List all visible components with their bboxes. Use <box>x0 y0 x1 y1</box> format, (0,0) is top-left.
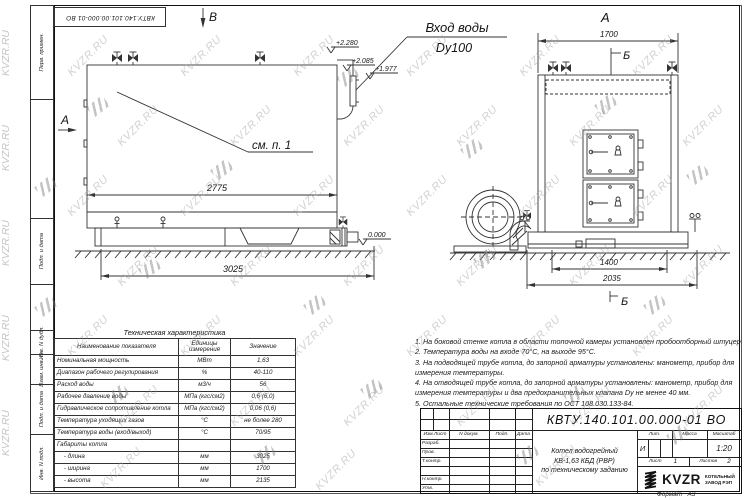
svg-text:0.000: 0.000 <box>368 232 386 239</box>
inlet-label: Вход воды Dy100 <box>356 20 507 90</box>
kvzr-watermark-vertical: KVZR.RU <box>0 125 12 171</box>
stamp-grid-line <box>421 430 741 431</box>
svg-text:+2.085: +2.085 <box>352 58 374 65</box>
kvzr-watermark-vertical: KVZR.RU <box>0 315 12 361</box>
svg-text:2035: 2035 <box>602 274 621 283</box>
svg-text:Dy100: Dy100 <box>436 41 472 55</box>
kvzr-logo-text: KVZR <box>662 472 701 487</box>
left-view-base-frame <box>95 217 347 246</box>
stamp-lit-label: Лит. <box>637 430 672 439</box>
stamp-col-data: Дата <box>515 430 532 439</box>
elevation-marks: +2.280 +2.085 +1.977 0.000 <box>327 40 398 245</box>
table-row: - ширинамм1700 <box>55 464 296 476</box>
kvzr-watermark-vertical: KVZR.RU <box>0 410 12 456</box>
stamp-grid-line <box>489 409 490 493</box>
section-marker-b-bottom: Б <box>621 296 628 308</box>
note-line: 1. На боковой стенке котла в области топ… <box>415 337 742 347</box>
margin-cell-empty-1 <box>30 99 54 219</box>
section-marker-v: В <box>209 10 217 24</box>
margin-cell-empty-2 <box>30 284 54 331</box>
table-row: Габариты котла <box>55 440 296 452</box>
svg-text:Вход воды: Вход воды <box>425 20 489 35</box>
stamp-col-podp: Подп. <box>489 430 515 439</box>
view-marker-a: А <box>60 113 69 127</box>
callout-see-p1: см. п. 1 <box>252 140 291 152</box>
col-header-units: Единицы измерения <box>179 339 231 356</box>
kvzr-watermark-vertical: KVZR.RU <box>0 220 12 266</box>
margin-cell-podp-data-2: Подп. и дата <box>30 384 54 435</box>
stamp-row-utv: Утв. <box>421 484 449 493</box>
left-view-boiler-front: см. п. 1 2775 3025 В А <box>58 8 507 280</box>
stamp-grid-line <box>449 409 450 493</box>
stamp-grid-line <box>637 430 638 493</box>
technical-notes: 1. На боковой стенке котла в области топ… <box>415 337 742 409</box>
stamp-grid-line <box>672 430 673 457</box>
stamp-row-blank <box>421 466 449 475</box>
dim-1700: 1700 <box>538 30 678 73</box>
margin-cell-inv-podl: Инв. N подл. <box>30 434 54 492</box>
col-header-value: Значение <box>231 339 296 356</box>
table-row: Расход водым3/ч56 <box>55 380 296 392</box>
note-line: 4. На отводящей трубе котла, до запорной… <box>415 378 742 399</box>
table-row: Температура уходящих газов°Сне более 280 <box>55 416 296 428</box>
stamp-grid-line <box>515 409 516 493</box>
svg-text:3025: 3025 <box>223 264 244 274</box>
stamp-grid-line <box>532 409 533 493</box>
format-label: Формат А3 <box>612 491 740 498</box>
drawing-sheet: Перв. примен. Подп. и дата Инв. N дубл. … <box>0 0 750 500</box>
tech-table: Наименование показателя Единицы измерени… <box>54 338 296 488</box>
table-row: Гидравлическое сопротивление котлаМПа (к… <box>55 404 296 416</box>
title-block: КВТУ.140.101.00.000-01 ВО Изм.Лист N док… <box>420 408 742 494</box>
stamp-mass-label: Масса <box>672 430 707 439</box>
note-line: 3. На подводящей трубе котла, до запорно… <box>415 358 742 379</box>
lower-access-door <box>583 180 643 227</box>
stamp-grid-line <box>689 457 690 466</box>
note-line: 2. Температура воды на входе 70°С, на вы… <box>415 347 742 357</box>
stamp-doc-number: КВТУ.140.101.00.000-01 ВО <box>532 409 741 430</box>
stamp-scale-value: 1:20 <box>707 439 741 457</box>
dim-2035: 2035 <box>527 250 697 289</box>
stamp-grid-line <box>637 439 741 440</box>
stamp-sheets-cell: Листов 2 <box>689 457 741 466</box>
stamp-scale-label: Масштаб <box>707 430 741 439</box>
stamp-col-izm-list: Изм.Лист <box>421 430 449 439</box>
stamp-lit-value: И <box>637 439 648 457</box>
table-row: Температура воды (вход/выход)°С70/95 <box>55 428 296 440</box>
upper-access-door <box>583 130 643 178</box>
stamp-title: Котел водогрейный КВ-1,63 КБД (РВР) по т… <box>532 430 637 493</box>
stamp-row-prov: Пров. <box>421 448 449 457</box>
margin-cell-inv-dubl: Инв. N дубл. <box>30 330 54 355</box>
stamp-grid-line <box>433 409 434 430</box>
stamp-grid-line <box>707 430 708 457</box>
kvzr-coil-icon <box>643 470 658 490</box>
tech-table-body: Номинальная мощностьМВт1,63Диапазон рабо… <box>55 356 296 488</box>
margin-cell-perv-primen: Перв. примен. <box>30 5 54 100</box>
kvzr-watermark-vertical: KVZR.RU <box>0 30 12 76</box>
table-row: - длинамм3025 <box>55 452 296 464</box>
stamp-row-nkontr: Н.контр. <box>421 475 449 484</box>
stamp-col-ndocum: N докум. <box>449 430 489 439</box>
table-row: Рабочее давление водыМПа (кгс/см2)0,6 (6… <box>55 392 296 404</box>
svg-text:2775: 2775 <box>206 183 228 193</box>
stamp-logo-cell: KVZR КОТЕЛЬНЫЙ ЗАВОД РЭП <box>637 466 741 493</box>
table-row: Номинальная мощностьМВт1,63 <box>55 356 296 368</box>
margin-cell-podp-data-1: Подп. и дата <box>30 218 54 285</box>
blower-fan <box>454 186 531 252</box>
kvzr-logo-subtitle: КОТЕЛЬНЫЙ ЗАВОД РЭП <box>705 474 735 485</box>
section-marker-b-top: Б <box>623 50 630 62</box>
stamp-grid-line <box>660 439 661 457</box>
view-a-title: А <box>600 10 610 25</box>
stamp-grid-line <box>648 439 649 457</box>
col-header-name: Наименование показателя <box>55 339 179 356</box>
stamp-row-tkontr: Т.контр. <box>421 457 449 466</box>
margin-cell-vzam-inv: Взам. инв. N <box>30 354 54 385</box>
drawing-canvas: см. п. 1 2775 3025 В А <box>55 0 750 335</box>
stamp-sheet-cell: Лист 1 <box>637 457 689 466</box>
table-row: Диапазон рабочего регулирования%40-110 <box>55 368 296 380</box>
svg-text:1700: 1700 <box>600 30 618 39</box>
dim-2775: 2775 <box>87 183 337 197</box>
drain-outlet-flange <box>330 228 358 246</box>
table-row: - высотамм2135 <box>55 476 296 488</box>
svg-text:+2.280: +2.280 <box>336 40 358 47</box>
right-view-boiler-side: А 1700 Б Б <box>450 10 730 308</box>
svg-text:1400: 1400 <box>600 258 618 267</box>
stamp-grid-line <box>637 466 741 467</box>
stamp-row-razrab: Разраб. <box>421 439 449 448</box>
